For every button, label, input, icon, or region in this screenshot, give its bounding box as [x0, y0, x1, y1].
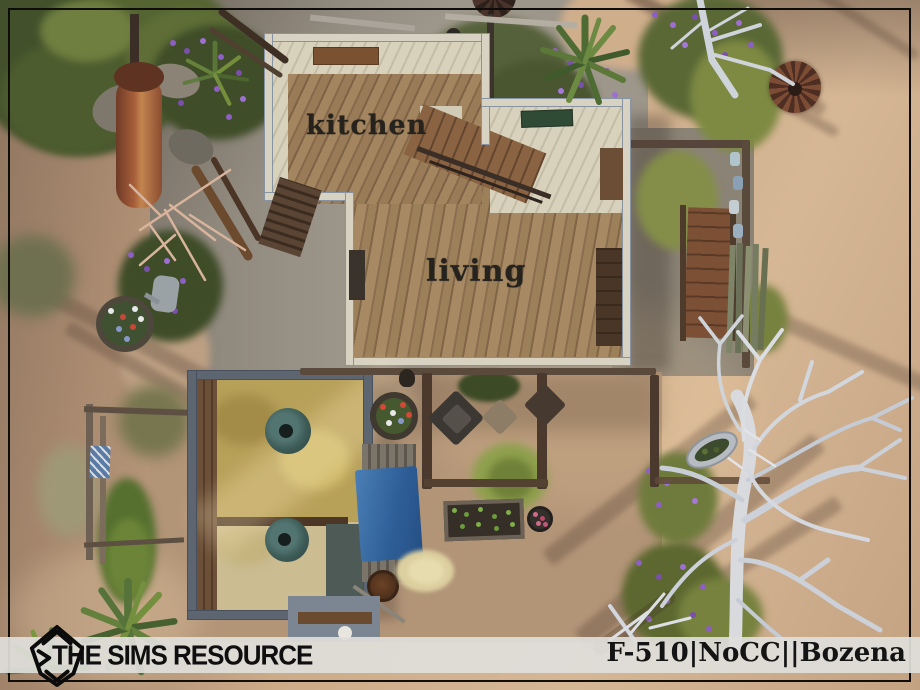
watering-can [150, 274, 181, 313]
living-wall-top [481, 98, 631, 107]
purple-flower-dots [128, 252, 134, 258]
bush [690, 40, 782, 152]
purple-flower-dots [652, 12, 658, 18]
can [733, 176, 743, 190]
feed-bowl-hole [279, 424, 293, 438]
purple-flower-dots [552, 48, 558, 54]
tree-canopy-highlight [40, 0, 135, 62]
kitchen-wall-right [481, 33, 490, 145]
pink-flower-dots [533, 512, 538, 517]
fence-post [86, 404, 93, 560]
blue-tarp [355, 466, 423, 562]
rust-boiler [116, 76, 162, 208]
hay-pile [408, 558, 444, 584]
towel [89, 446, 110, 479]
flower-pot [527, 506, 553, 532]
purple-flower-dots [636, 560, 642, 566]
barn-wall-left [187, 370, 197, 620]
fence-rail-right [655, 477, 770, 484]
pergola-post [422, 373, 432, 489]
planter-flower-dots [380, 404, 386, 410]
kitchen-wall-left [264, 33, 273, 201]
ivy-vine [106, 518, 152, 600]
deck-beam [618, 140, 750, 148]
flower-planter [96, 296, 154, 352]
boiler-dome [114, 62, 164, 92]
exterior-stairs [684, 207, 733, 338]
sage-patch [118, 385, 190, 457]
window-ledge [349, 250, 365, 300]
kitchen-wall-top [264, 33, 490, 42]
can [733, 224, 743, 238]
stair-rail [680, 205, 686, 341]
wall-sign [521, 109, 574, 128]
table-plank [298, 612, 372, 624]
hanging-kettle [399, 369, 415, 387]
sims-lot-screenshot: kitchen living [0, 0, 920, 690]
kitchen-shelf [313, 47, 379, 65]
round-planter [370, 392, 418, 440]
brand-title: THE SIMS RESOURCE [52, 639, 312, 672]
pergola-post [650, 375, 659, 487]
living-label: living [426, 254, 526, 289]
sprout-dots [452, 508, 457, 513]
tsr-plumbob-logo-icon [26, 624, 88, 688]
garden-bed [443, 499, 524, 542]
purple-flower-dots [170, 40, 176, 46]
pergola-beam [300, 368, 656, 375]
footer-bar: THE SIMS RESOURCE F-510|NoCC||Bozena [0, 637, 920, 673]
kitchen-label: kitchen [306, 110, 427, 141]
pergola-beam [424, 479, 548, 487]
white-flower-dots [108, 308, 114, 314]
can [730, 152, 740, 166]
window-ledge [600, 148, 623, 200]
watermark-text: F-510|NoCC||Bozena [606, 638, 906, 668]
feed-bowl-hole [278, 533, 291, 546]
cabinet [596, 248, 622, 346]
spiral-center [788, 82, 802, 96]
can [729, 200, 739, 214]
living-wall-right [622, 98, 631, 366]
